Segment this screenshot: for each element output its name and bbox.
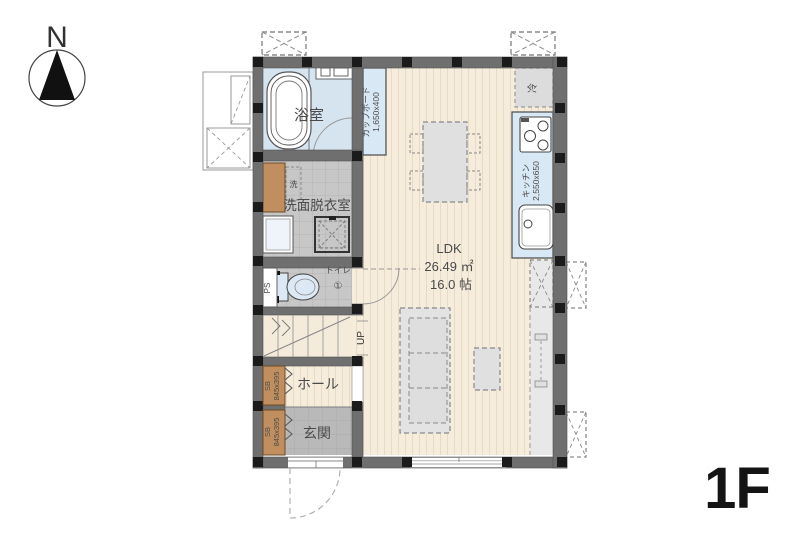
stairs-up-label: UP <box>356 331 367 345</box>
ac-unit-marker-right-lower <box>566 412 586 457</box>
hall-label: ホール <box>297 376 339 392</box>
compass: N <box>29 21 85 106</box>
compass-north-label: N <box>46 21 68 54</box>
shoe-box-upper-label: SB <box>263 381 272 391</box>
washbasin <box>263 216 293 253</box>
entrance-label: 玄関 <box>303 425 331 441</box>
linen-cabinet <box>263 163 285 212</box>
floor-plan-canvas: N <box>0 0 800 540</box>
hall-opening <box>352 366 363 402</box>
washroom-label: 洗面脱衣室 <box>283 197 351 213</box>
compass-needle-icon <box>39 50 75 100</box>
dining-table <box>423 122 467 202</box>
shoe-box-lower-size-label: 845x395 <box>272 418 281 447</box>
toilet-number-label: ① <box>334 281 343 292</box>
ldk-area-jo-label: 16.0 帖 <box>430 277 472 292</box>
shoe-box-lower-label: SB <box>263 427 272 437</box>
bathroom-label: 浴室 <box>294 107 324 124</box>
pipe-space-label: PS <box>263 283 272 294</box>
cupboard-size-label: 1,650x400 <box>371 92 381 132</box>
eave-marker-top-right <box>511 32 555 55</box>
ac-unit-marker-right-upper <box>566 262 586 308</box>
sofa <box>400 308 450 433</box>
cupboard-label: カップボード <box>361 86 371 137</box>
eave-marker-top-left <box>262 32 306 55</box>
water-heater-unit <box>203 72 253 170</box>
kitchen-sink <box>519 205 553 249</box>
floor-plan-page: N <box>0 0 800 540</box>
entrance-door-swing <box>290 468 340 518</box>
kitchen-label: キッチン <box>521 164 531 198</box>
coffee-table <box>474 348 500 390</box>
refrigerator-label: 冷 <box>526 83 539 93</box>
kitchen-size-label: 2,550x650 <box>531 161 541 201</box>
ldk-area-m2-label: 26.49 ㎡ <box>424 259 473 274</box>
shoe-box-upper-size-label: 845x395 <box>272 372 281 401</box>
stove <box>520 117 551 152</box>
living-window <box>411 458 506 468</box>
washer-label: 洗 <box>290 179 298 189</box>
toilet-label: トイレ <box>325 265 351 275</box>
ac-unit-marker-inside <box>530 260 553 307</box>
toilet-fixture <box>272 271 319 303</box>
entrance-door-opening <box>288 458 343 519</box>
floor-label: 1F <box>704 456 770 521</box>
ldk-name-label: LDK <box>436 241 462 256</box>
